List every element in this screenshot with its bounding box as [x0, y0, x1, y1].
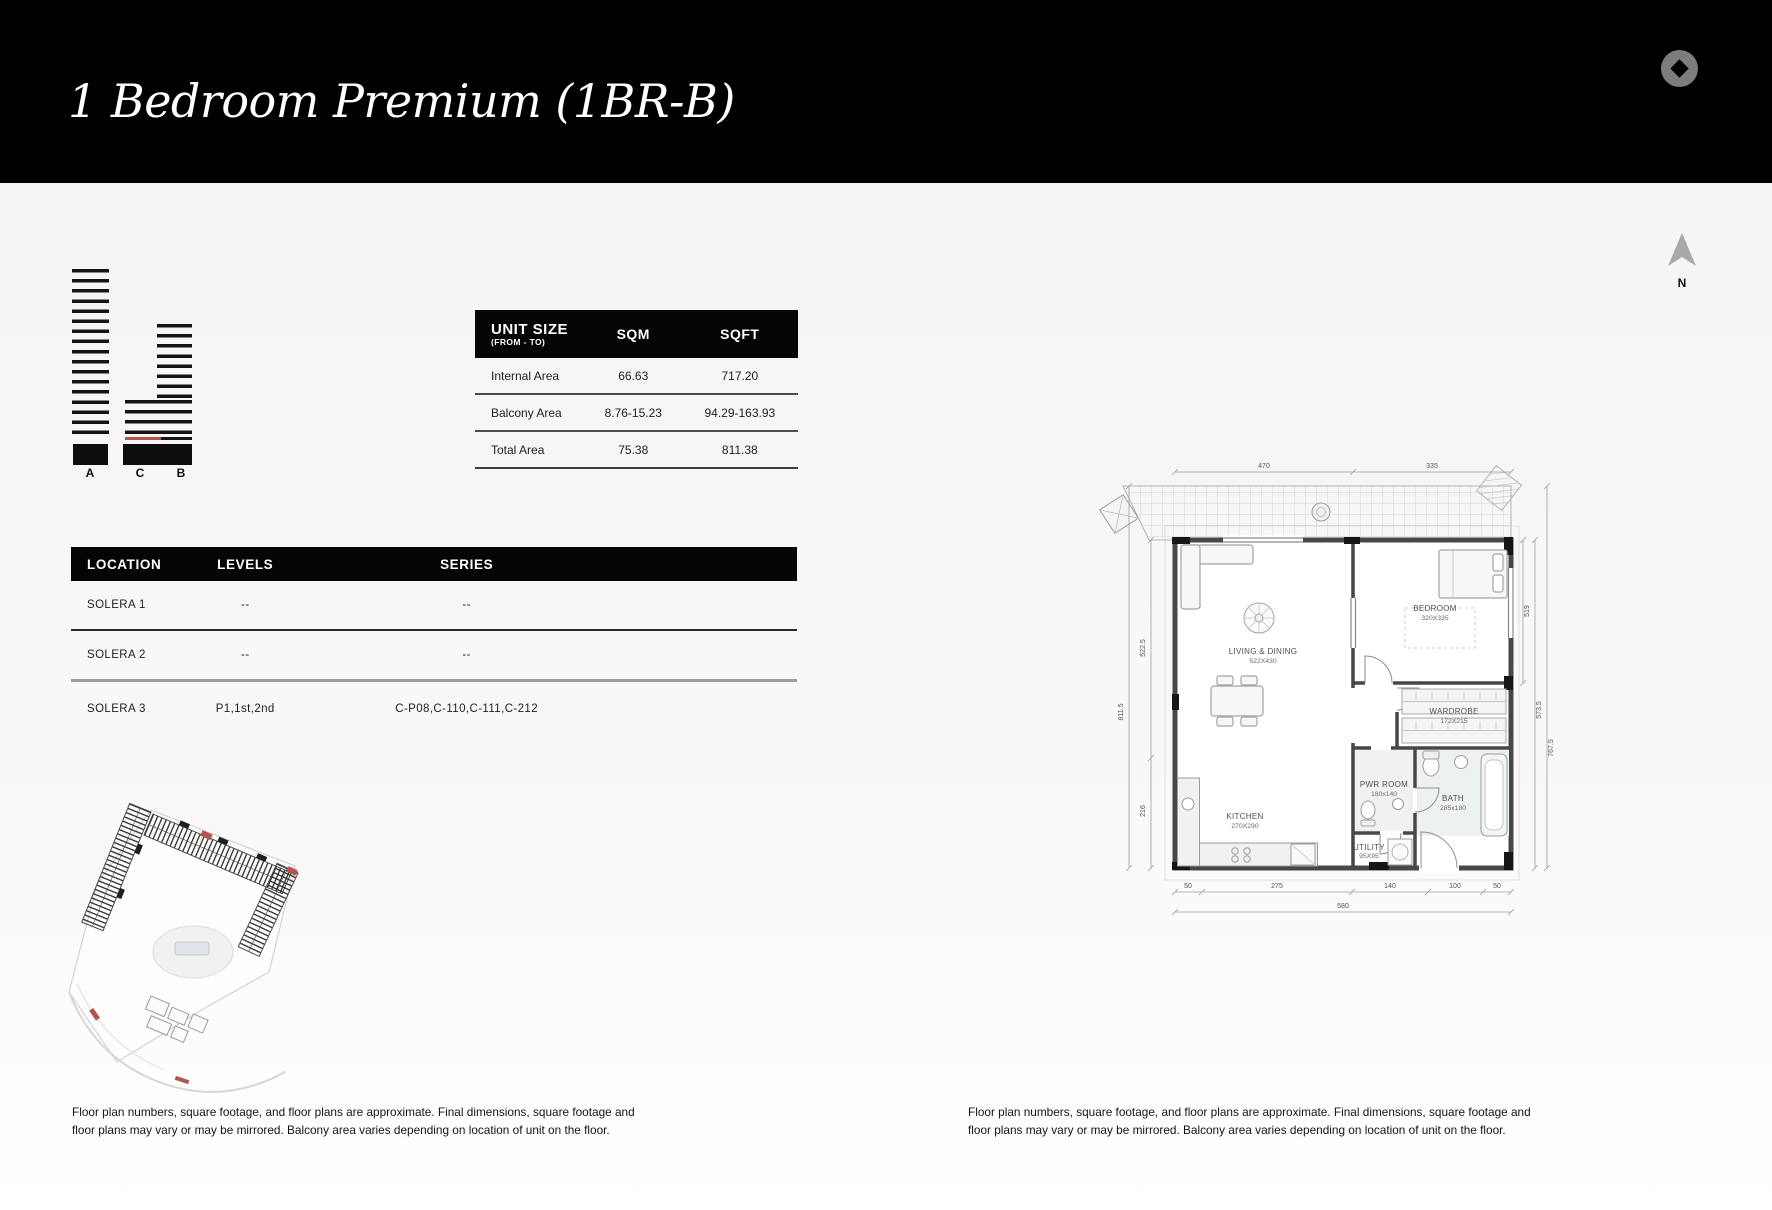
- room-label: BATH: [1442, 794, 1464, 803]
- room-label: PWR ROOM: [1360, 780, 1408, 789]
- svg-text:285x180: 285x180: [1440, 805, 1466, 812]
- diamond-icon: [1670, 59, 1688, 77]
- col-levels: LEVELS: [194, 557, 296, 572]
- highlighted-level-stripe: [125, 437, 192, 441]
- tower-label-c: C: [130, 466, 150, 480]
- table-row: Total Area 75.38 811.38: [475, 432, 798, 469]
- unit-size-table-header: UNIT SIZE (FROM - TO) SQM SQFT: [475, 310, 798, 358]
- row-sqm: 75.38: [585, 443, 682, 457]
- svg-text:50: 50: [1493, 883, 1501, 890]
- svg-text:172X215: 172X215: [1440, 718, 1467, 725]
- tower-a-stripes: [72, 269, 109, 440]
- pool: [175, 942, 209, 955]
- row-series: C-P08,C-110,C-111,C-212: [296, 703, 637, 715]
- col-series: SERIES: [296, 557, 637, 572]
- col-location: LOCATION: [71, 557, 194, 572]
- disclaimer-left: Floor plan numbers, square footage, and …: [72, 1104, 647, 1139]
- svg-text:216: 216: [1140, 805, 1147, 817]
- svg-text:573.5: 573.5: [1536, 701, 1543, 719]
- tower-a-base: [73, 444, 108, 465]
- row-levels: --: [194, 599, 296, 611]
- floor-plan-drawing: LIVING & DINING 522X430 BEDROOM 320X335 …: [1085, 448, 1560, 940]
- tower-label-b: B: [171, 466, 191, 480]
- utility-washer: [1388, 839, 1412, 865]
- brochure-page: 1 Bedroom Premium (1BR-B) N A C B UNIT S…: [0, 0, 1772, 1210]
- room-label: WARDROBE: [1429, 707, 1478, 716]
- svg-text:140: 140: [1384, 883, 1396, 890]
- location-table-header: LOCATION LEVELS SERIES: [71, 547, 797, 581]
- row-sqft: 811.38: [682, 443, 798, 457]
- svg-text:580: 580: [1337, 903, 1349, 910]
- brand-badge: [1661, 50, 1698, 87]
- row-sqft: 717.20: [682, 369, 798, 383]
- row-label: Balcony Area: [475, 406, 585, 420]
- table-row: SOLERA 1 -- --: [71, 581, 797, 631]
- row-sqm: 66.63: [585, 369, 682, 383]
- svg-text:275: 275: [1271, 883, 1283, 890]
- round-table: [1244, 603, 1274, 633]
- svg-text:320X335: 320X335: [1421, 615, 1448, 622]
- north-arrow-icon: [1665, 232, 1699, 268]
- row-location: SOLERA 3: [71, 703, 194, 715]
- svg-text:180x140: 180x140: [1371, 791, 1397, 798]
- table-row: Balcony Area 8.76-15.23 94.29-163.93: [475, 395, 798, 432]
- svg-text:519: 519: [1524, 605, 1531, 617]
- tower-b-stripes: [157, 324, 192, 400]
- row-levels: P1,1st,2nd: [194, 703, 296, 715]
- room-label: KITCHEN: [1226, 812, 1263, 821]
- row-levels: --: [194, 649, 296, 661]
- north-label: N: [1663, 276, 1701, 290]
- svg-text:470: 470: [1258, 463, 1270, 470]
- row-series: --: [296, 599, 637, 611]
- svg-text:522.5: 522.5: [1140, 639, 1147, 657]
- dining-table: [1211, 686, 1263, 716]
- col-unit-size-sub: (FROM - TO): [491, 337, 585, 347]
- site-plan-map: [55, 800, 355, 1110]
- location-table: LOCATION LEVELS SERIES SOLERA 1 -- -- SO…: [71, 547, 797, 736]
- disclaimer-right: Floor plan numbers, square footage, and …: [968, 1104, 1543, 1139]
- svg-text:50: 50: [1184, 883, 1192, 890]
- unit-size-table: UNIT SIZE (FROM - TO) SQM SQFT Internal …: [475, 310, 798, 469]
- row-location: SOLERA 2: [71, 649, 194, 661]
- svg-text:335: 335: [1426, 463, 1438, 470]
- north-indicator: N: [1663, 232, 1701, 290]
- room-label: BEDROOM: [1413, 604, 1456, 613]
- table-row: Internal Area 66.63 717.20: [475, 358, 798, 395]
- tower-cb-stripes: [125, 400, 192, 434]
- svg-text:270X290: 270X290: [1231, 823, 1258, 830]
- row-sqm: 8.76-15.23: [585, 406, 682, 420]
- round-planter: [1312, 503, 1330, 521]
- row-sqft: 94.29-163.93: [682, 406, 798, 420]
- row-location: SOLERA 1: [71, 599, 194, 611]
- col-sqft: SQFT: [682, 326, 798, 342]
- svg-text:100: 100: [1449, 883, 1461, 890]
- col-unit-size: UNIT SIZE: [491, 322, 585, 337]
- col-sqm: SQM: [585, 326, 682, 342]
- room-label: UTILITY: [1353, 843, 1385, 852]
- bath-sink: [1455, 756, 1468, 769]
- sink: [1182, 798, 1194, 810]
- page-title: 1 Bedroom Premium (1BR-B): [68, 74, 735, 128]
- row-label: Internal Area: [475, 369, 585, 383]
- svg-text:95X95: 95X95: [1359, 853, 1379, 860]
- table-row: SOLERA 3 P1,1st,2nd C-P08,C-110,C-111,C-…: [71, 682, 797, 736]
- row-series: --: [296, 649, 637, 661]
- row-label: Total Area: [475, 443, 585, 457]
- table-row: SOLERA 2 -- --: [71, 631, 797, 682]
- header-band: 1 Bedroom Premium (1BR-B): [0, 0, 1772, 183]
- svg-text:767.5: 767.5: [1548, 739, 1555, 757]
- svg-text:522X430: 522X430: [1249, 658, 1276, 665]
- room-label: LIVING & DINING: [1229, 647, 1298, 656]
- svg-text:811.5: 811.5: [1118, 703, 1125, 720]
- tower-label-a: A: [80, 466, 100, 480]
- tower-cb-base: [123, 444, 192, 465]
